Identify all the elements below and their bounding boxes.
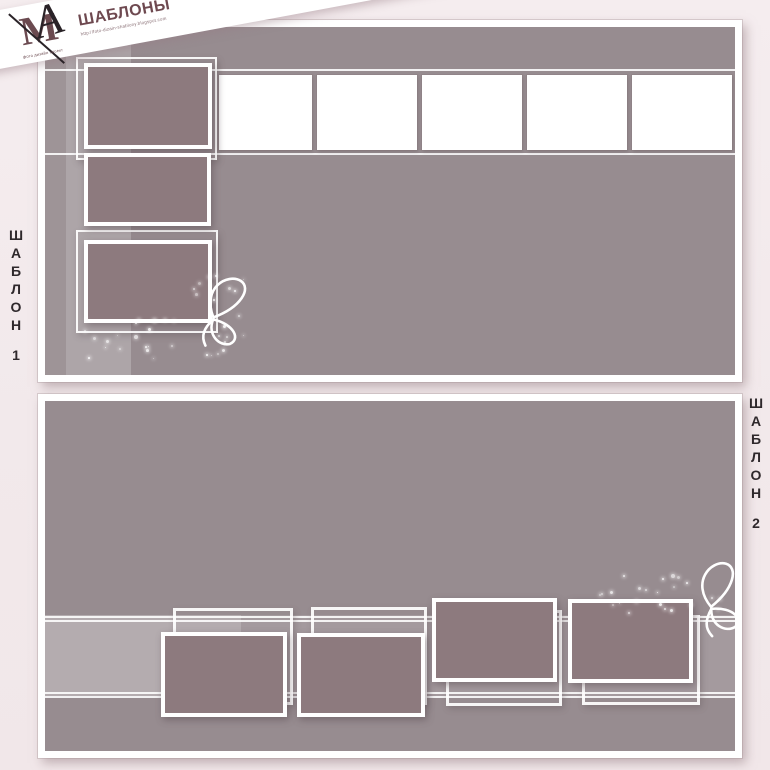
light-strip-narrow: [45, 27, 66, 375]
template2-canvas: [45, 401, 735, 751]
photo-frame-filled: [84, 153, 211, 226]
photo-frame-filled: [161, 632, 287, 717]
photo-frame-filled: [432, 598, 557, 682]
template2-label: ШАБЛОН2: [745, 396, 767, 531]
template2-preview[interactable]: [38, 394, 742, 758]
template1-canvas: [45, 27, 735, 375]
photo-slot-empty: [422, 75, 522, 150]
brand-monogram: М А фото дизайн проект: [17, 4, 75, 58]
photo-slot-empty: [219, 75, 312, 150]
photo-frame-filled: [84, 63, 212, 149]
photo-frame-filled: [297, 633, 425, 717]
photo-frame-filled: [84, 240, 212, 323]
template1-label: ШАБЛОН1: [5, 228, 27, 363]
template1-preview[interactable]: [38, 20, 742, 382]
photo-frame-filled: [568, 599, 693, 683]
photo-slot-empty: [527, 75, 627, 150]
photo-slot-empty: [317, 75, 417, 150]
photo-slot-empty: [632, 75, 732, 150]
